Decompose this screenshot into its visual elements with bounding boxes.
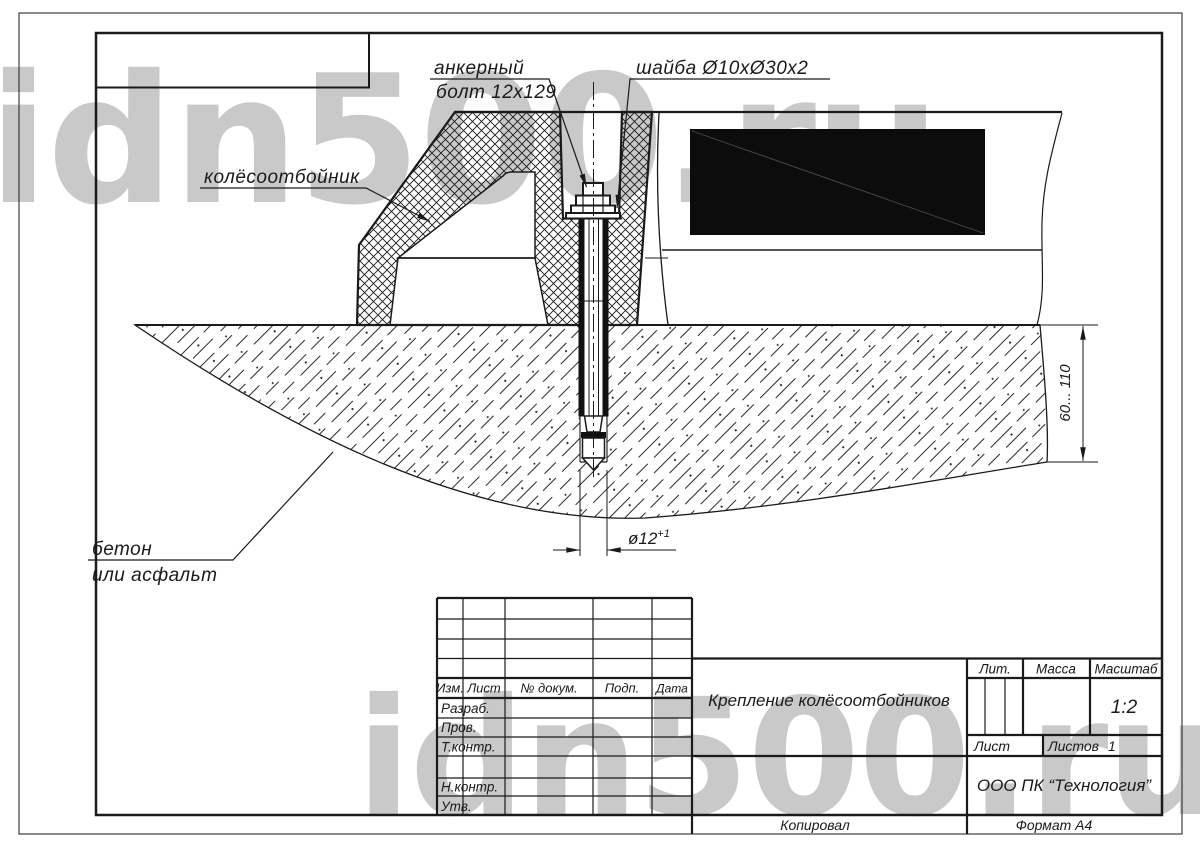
base-label-2: или асфальт: [92, 565, 217, 586]
footer-format: Формат А4: [1016, 817, 1093, 833]
dimension-depth: 60... 110: [1040, 325, 1098, 462]
embed-depth-dim: 60... 110: [1057, 364, 1074, 422]
footer-copy: Копировал: [780, 817, 850, 833]
scale-value: 1:2: [1111, 697, 1138, 718]
hole-gap-right: [603, 219, 609, 417]
sheets-label: Листов: [1047, 738, 1099, 754]
hole-diameter-dim: ø12+1: [628, 528, 670, 548]
washer-label: шайба Ø10хØ30х2: [636, 58, 808, 79]
title-block-right-header: Лит. Масса Масштаб: [978, 662, 1158, 677]
col-podp: Подп.: [605, 681, 640, 696]
lower-hollow: [390, 258, 548, 325]
drawing-sheet: idn500.ru idn500.ru: [0, 0, 1200, 848]
company-name: ООО ПК “Технология”: [977, 776, 1153, 795]
col-list: Лист: [466, 681, 501, 696]
anchor-bolt-label-1: анкерный: [434, 58, 524, 79]
lit-label: Лит.: [978, 662, 1011, 677]
mass-label: Масса: [1036, 662, 1076, 677]
sheets-value: 1: [1108, 738, 1116, 754]
scale-label: Масштаб: [1094, 662, 1157, 677]
technical-drawing: idn500.ru idn500.ru: [0, 0, 1200, 848]
row-ncontrol: Н.контр.: [441, 780, 498, 795]
row-checked: Пров.: [441, 720, 477, 735]
row-tcontrol: Т.контр.: [441, 740, 495, 755]
base-label-1: бетон: [92, 539, 152, 560]
col-data: Дата: [654, 682, 688, 696]
row-approved: Утв.: [440, 799, 472, 814]
col-izm: Изм.: [436, 681, 464, 696]
row-developed: Разраб.: [441, 701, 490, 716]
break-line: [1037, 113, 1062, 325]
doc-title: Крепление колёсоотбойников: [708, 691, 950, 710]
sheet-label: Лист: [973, 738, 1010, 754]
wheel-stop-label: колёсоотбойник: [204, 167, 360, 188]
col-docnum: № докум.: [520, 681, 577, 696]
hole-gap-left: [579, 219, 585, 417]
anchor-bolt-label-2: болт 12х129: [436, 82, 557, 103]
